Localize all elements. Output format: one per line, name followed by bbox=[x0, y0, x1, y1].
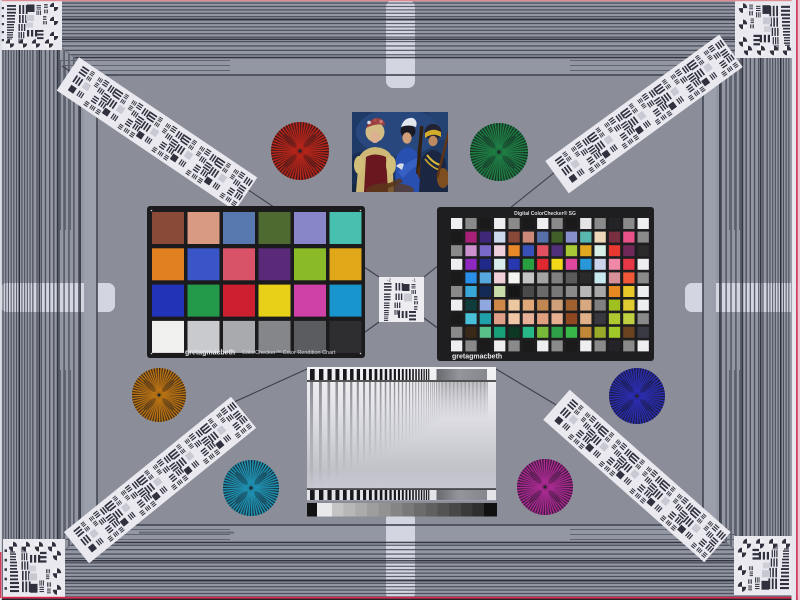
svg-text:gretagmacbeth: gretagmacbeth bbox=[452, 354, 502, 361]
svg-text:-1: -1 bbox=[412, 278, 416, 283]
svg-text:gretagmacbeth: gretagmacbeth bbox=[185, 350, 235, 357]
svg-text:ColorChecker™ Color Rendition: ColorChecker™ Color Rendition Chart bbox=[242, 350, 336, 356]
svg-text:Digital ColorChecker® SG: Digital ColorChecker® SG bbox=[514, 210, 576, 217]
svg-text:-2: -2 bbox=[387, 278, 391, 283]
